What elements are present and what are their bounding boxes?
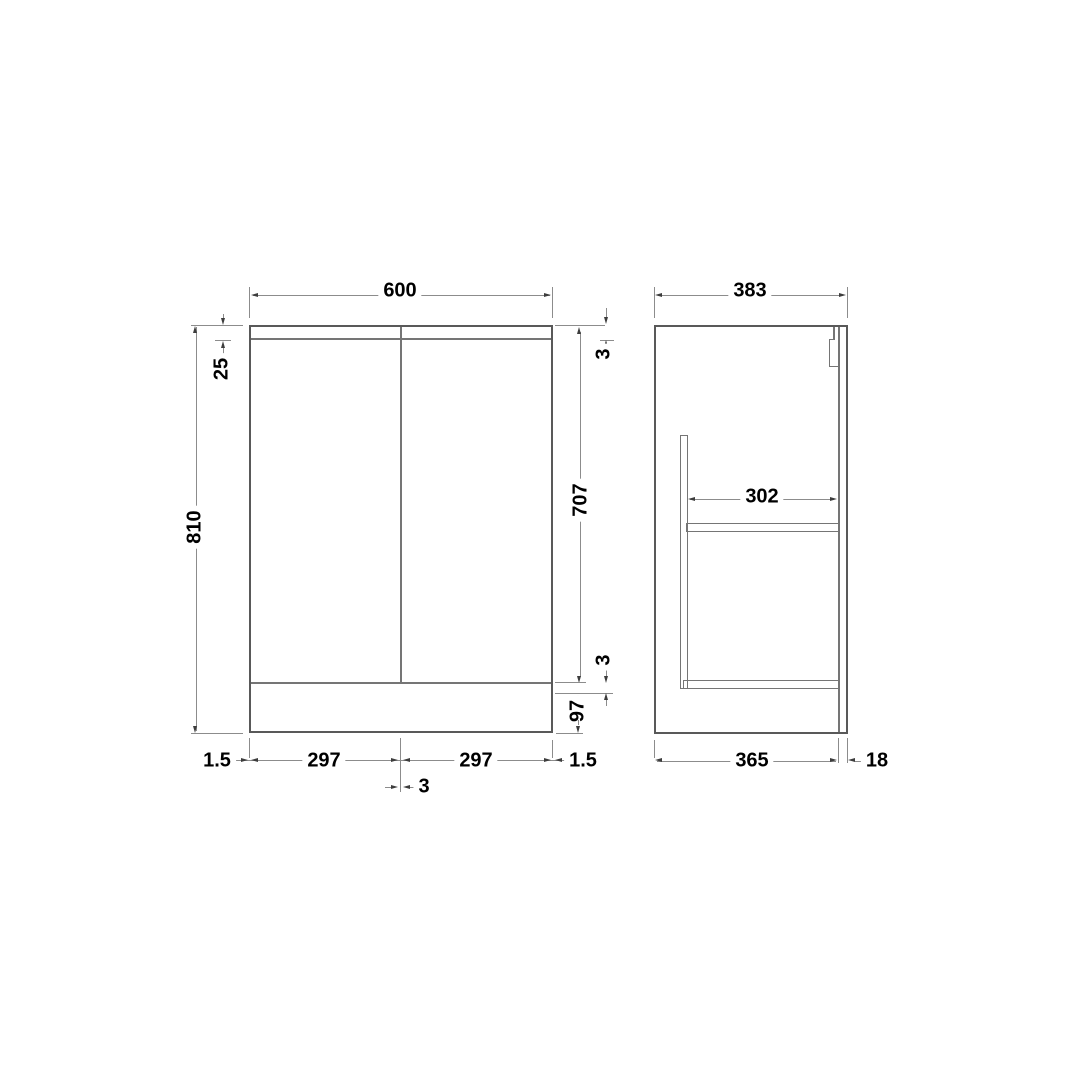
dim-arrow-right [391,758,398,762]
dim-extension-line [400,738,401,792]
dim-arrow-left [688,497,695,501]
dim-arrow-right [544,293,551,297]
dim-extension-line [555,682,586,683]
dim-arrow-left [403,758,410,762]
dim-extension-line [847,287,848,318]
dim-arrow-left [403,785,410,789]
dim-arrow-left [555,758,562,762]
front-doors-bottom-line [251,682,551,684]
dim-arrow-down [576,726,580,733]
dim-arrow-down [221,318,225,325]
dim-extension-line [191,325,243,326]
dim-arrow-right [830,497,837,501]
front-centre-gap-label: 3 [413,776,434,799]
front-right-door-width-label: 297 [454,750,497,773]
dim-arrow-up [221,341,225,348]
dim-extension-line [191,733,243,734]
front-left-margin-label: 1.5 [198,750,236,773]
dim-extension-line [654,740,655,758]
dim-arrow-right [830,758,837,762]
dim-line-bottom-row [232,760,566,761]
side-door-thickness-label: 18 [861,750,893,773]
side-carcass-depth-label: 365 [730,750,773,773]
dim-tail [606,700,607,706]
dim-arrow-down [604,676,608,683]
dim-arrow-up [193,326,197,333]
dim-extension-line [552,287,553,318]
dim-tail [855,761,861,762]
side-overall-depth-label: 383 [728,280,771,303]
dim-arrow-right [544,758,551,762]
side-shelf [686,523,839,532]
dim-arrow-down [604,317,608,324]
front-door-gap-divider [400,327,402,682]
dim-arrow-left [251,758,258,762]
dim-arrow-left [655,758,662,762]
front-overall-height-label: 810 [183,505,206,548]
dim-arrow-up [604,693,608,700]
dim-arrow-up [577,327,581,334]
dim-arrow-left [251,293,258,297]
dim-extension-line [556,733,583,734]
dim-extension-line [555,325,605,326]
front-door-height-label: 707 [569,478,592,521]
dim-arrow-left [848,758,855,762]
front-bottom-gap-label: 3 [593,649,616,670]
side-bottom-panel [683,680,839,689]
dim-extension-line [838,738,839,763]
dim-arrow-right [241,758,248,762]
technical-drawing-canvas: 600 810 25 3 707 3 [0,0,1080,1080]
dim-tail [578,720,579,725]
front-top-gap-label: 3 [593,343,616,364]
side-internal-depth-label: 302 [740,486,783,509]
front-left-door-width-label: 297 [302,750,345,773]
front-overall-width-label: 600 [378,280,421,303]
front-right-margin-label: 1.5 [564,750,602,773]
dim-arrow-down [193,726,197,733]
side-handle-recess-line [829,339,831,368]
dim-arrow-right [839,293,846,297]
front-top-panel-label: 25 [211,353,234,385]
dim-extension-line [249,738,250,758]
dim-arrow-left [655,293,662,297]
side-back-panel [680,435,688,689]
side-handle-recess-line [829,366,840,368]
dim-extension-line [552,740,553,758]
dim-arrow-right [391,785,398,789]
dim-extension-tick [215,340,231,341]
